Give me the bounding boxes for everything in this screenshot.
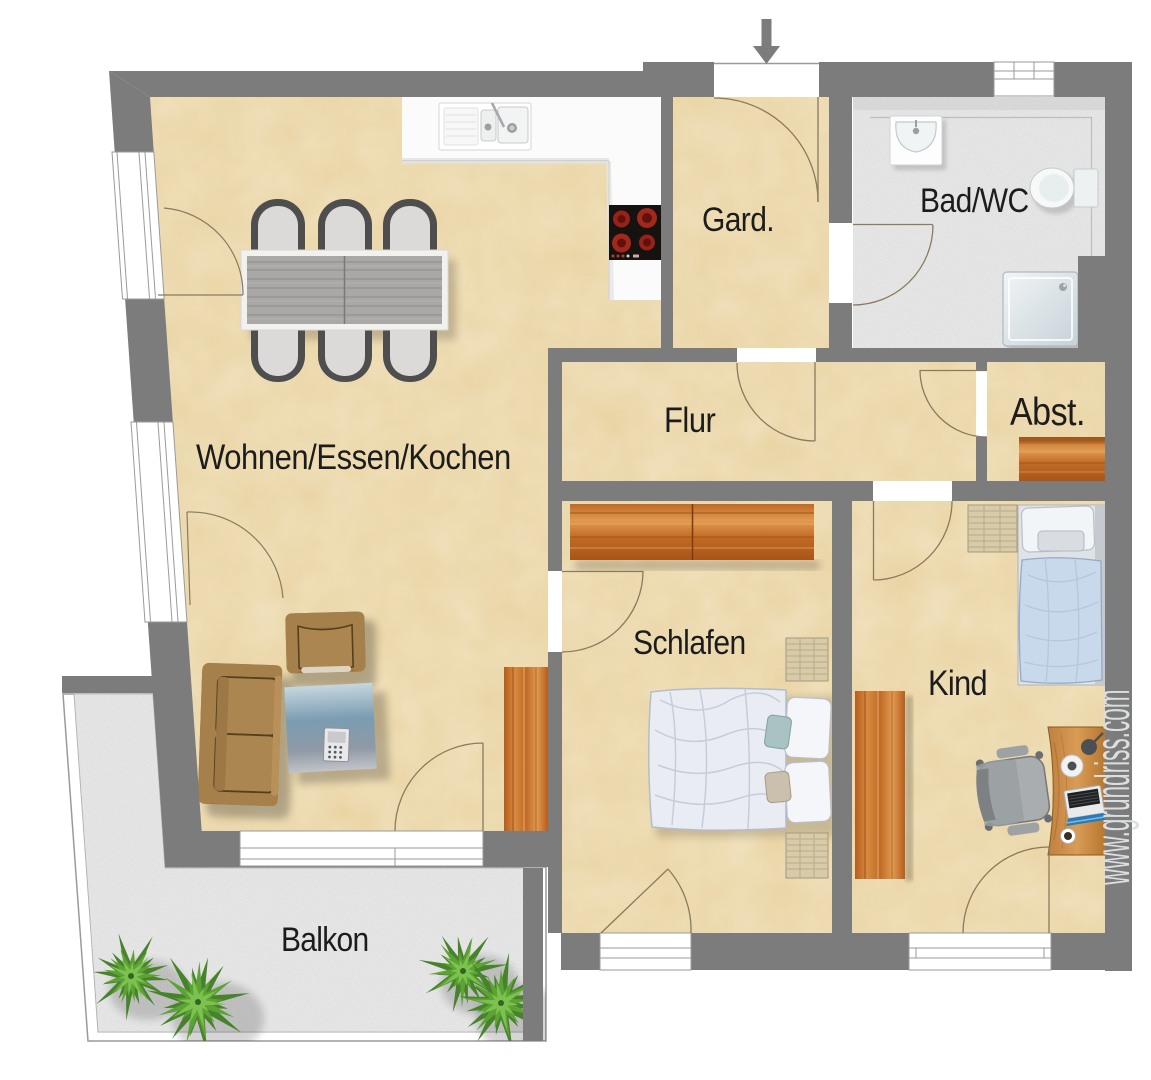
- svg-text:www.grundriss.com: www.grundriss.com: [1085, 689, 1139, 885]
- svg-text:Flur: Flur: [664, 401, 716, 440]
- svg-text:Abst.: Abst.: [1010, 390, 1085, 434]
- svg-text:Balkon: Balkon: [281, 920, 369, 958]
- svg-text:Schlafen: Schlafen: [633, 623, 746, 661]
- svg-text:Wohnen/Essen/Kochen: Wohnen/Essen/Kochen: [196, 438, 511, 477]
- svg-text:Bad/WC: Bad/WC: [920, 181, 1029, 219]
- svg-text:Gard.: Gard.: [702, 200, 774, 238]
- svg-text:Kind: Kind: [928, 664, 987, 703]
